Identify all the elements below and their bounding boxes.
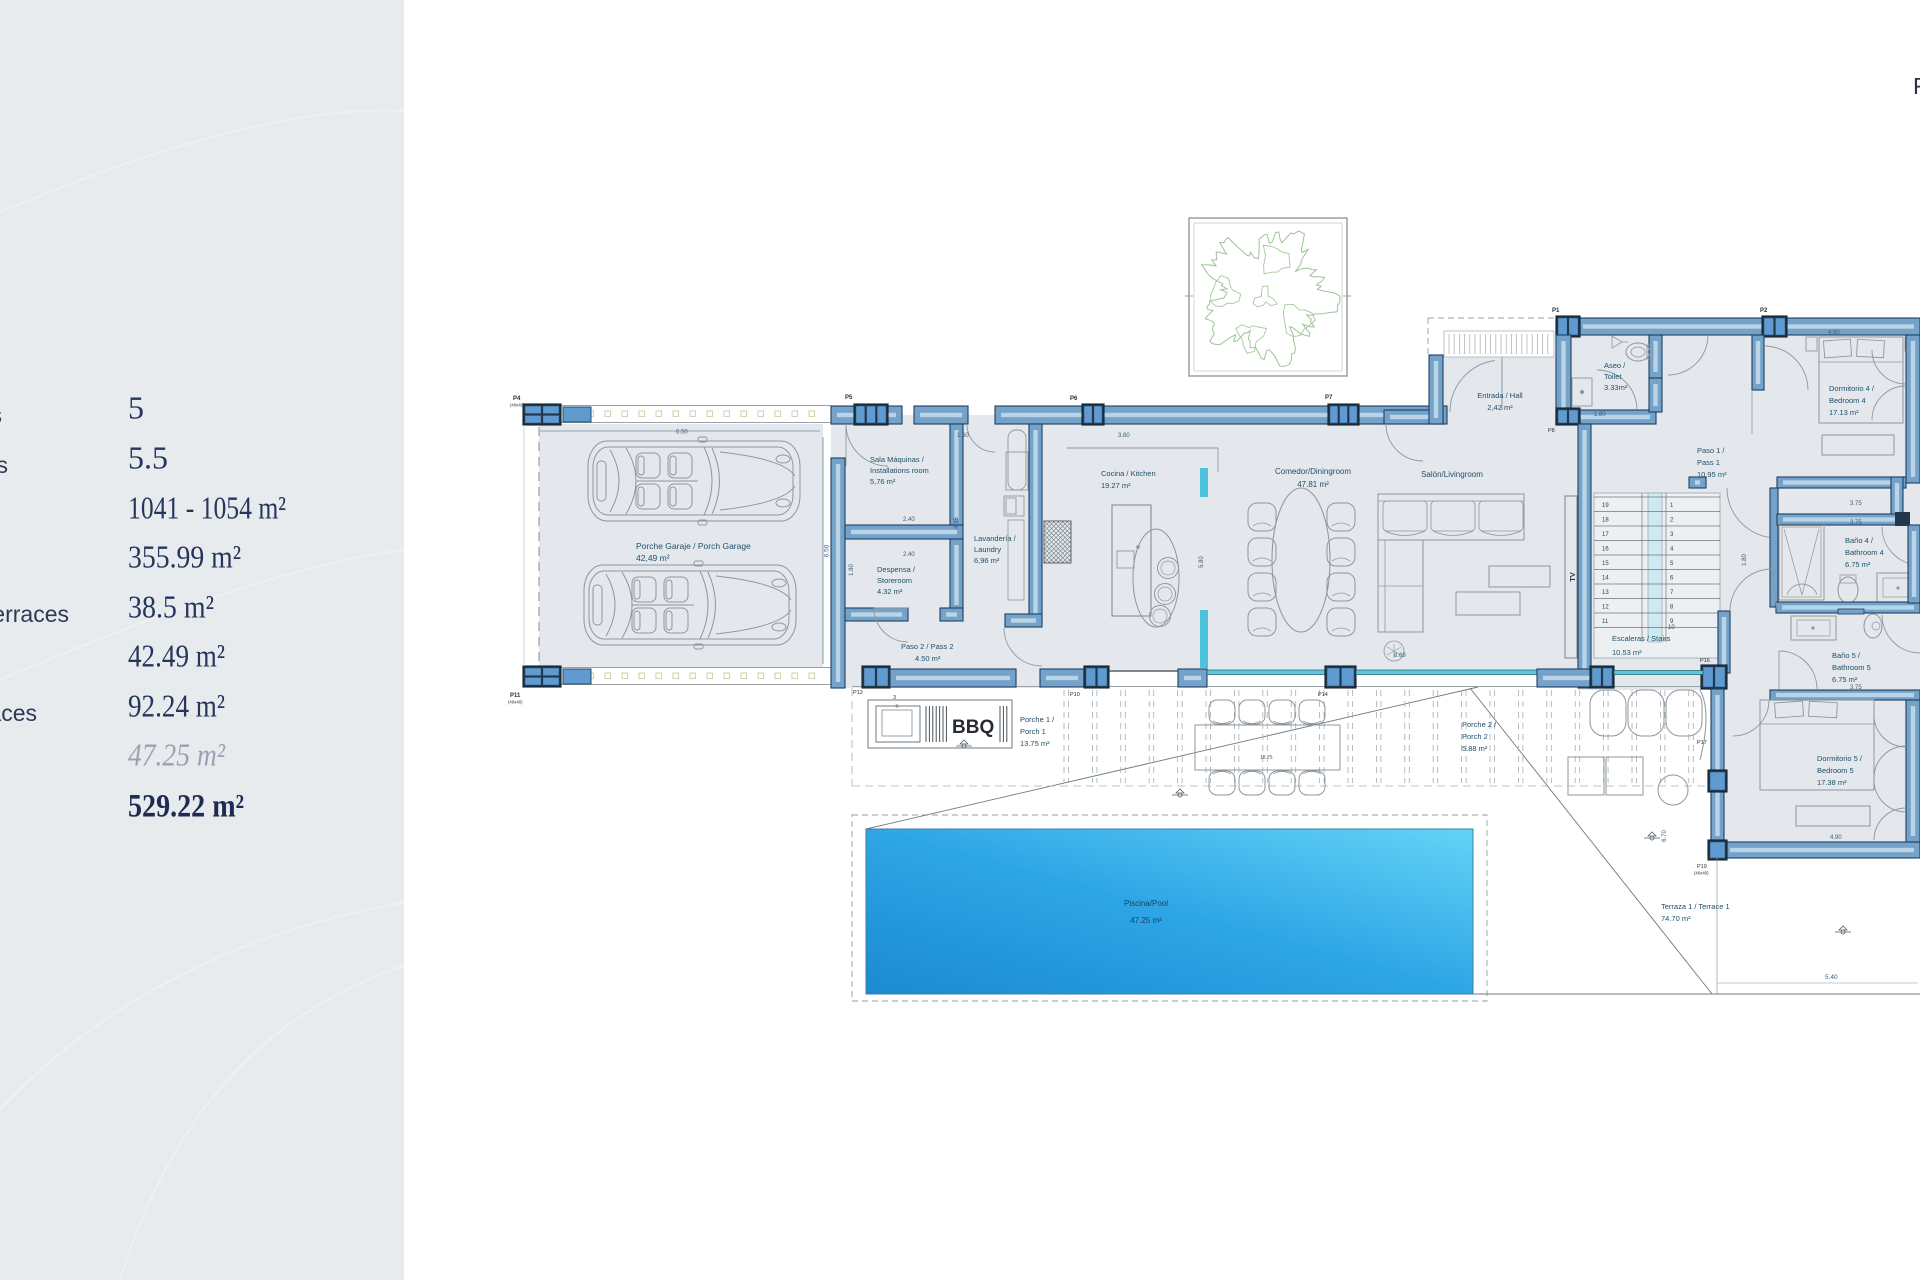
svg-text:(40x40): (40x40) (510, 403, 525, 408)
svg-text:Escaleras / Stairs: Escaleras / Stairs (1612, 634, 1671, 643)
svg-text:P8: P8 (1548, 428, 1555, 434)
svg-text:Sala Máquinas /: Sala Máquinas / (870, 455, 925, 464)
svg-text:Porch 1: Porch 1 (1020, 727, 1046, 736)
svg-text:BBQ: BBQ (952, 717, 994, 738)
svg-text:13.75 m²: 13.75 m² (1020, 739, 1050, 748)
svg-text:8.69: 8.69 (1394, 653, 1406, 659)
svg-text:3.75: 3.75 (1850, 501, 1862, 507)
svg-text:74.70 m²: 74.70 m² (1661, 914, 1691, 923)
svg-text:P4: P4 (513, 396, 521, 402)
svg-text:Paso 2 / Pass 2: Paso 2 / Pass 2 (901, 642, 954, 651)
svg-text:P6: P6 (1070, 396, 1078, 402)
svg-text:Laundry: Laundry (974, 545, 1001, 554)
svg-text:16: 16 (1602, 547, 1609, 553)
svg-text:10.95 m²: 10.95 m² (1697, 470, 1727, 479)
svg-text:18.75: 18.75 (1260, 755, 1273, 761)
svg-text:47.25 m²: 47.25 m² (128, 737, 226, 773)
svg-text:P12: P12 (853, 690, 863, 696)
svg-text:Porche 2 /: Porche 2 / (1462, 720, 1497, 729)
svg-text:1.80: 1.80 (1594, 412, 1606, 418)
svg-text:P16: P16 (1700, 658, 1710, 664)
svg-text:4.35: 4.35 (954, 517, 960, 529)
svg-text:P7: P7 (1325, 395, 1333, 401)
svg-text:4.90: 4.90 (1828, 330, 1840, 336)
svg-text:5.5: 5.5 (128, 440, 168, 476)
svg-text:5.88 m²: 5.88 m² (1462, 744, 1488, 753)
svg-text:4.90: 4.90 (1830, 835, 1842, 841)
svg-text:(40x40): (40x40) (1694, 871, 1709, 876)
svg-text:Covered terraces: Covered terraces (0, 700, 37, 726)
svg-text:3.80: 3.80 (1118, 433, 1130, 439)
svg-text:Porch 2: Porch 2 (1462, 732, 1488, 741)
svg-text:Baño 5 /: Baño 5 / (1832, 651, 1861, 660)
svg-text:(40x40): (40x40) (508, 700, 523, 705)
svg-text:17: 17 (1602, 532, 1609, 538)
svg-text:P10: P10 (1070, 692, 1080, 698)
svg-text:Baño 4 /: Baño 4 / (1845, 536, 1874, 545)
svg-text:Terraza 1 / Terrace 1: Terraza 1 / Terrace 1 (1661, 902, 1730, 911)
svg-text:10.53 m²: 10.53 m² (1612, 648, 1642, 657)
svg-text:355.99 m²: 355.99 m² (128, 539, 241, 575)
svg-text:47.81 m²: 47.81 m² (1297, 480, 1329, 489)
svg-text:Bathroom 4: Bathroom 4 (1845, 548, 1884, 557)
svg-text:15: 15 (1602, 561, 1609, 567)
svg-text:6.75 m²: 6.75 m² (1845, 560, 1871, 569)
svg-text:Paso 1 /: Paso 1 / (1697, 446, 1725, 455)
svg-text:Cocina / Kitchen: Cocina / Kitchen (1101, 469, 1156, 478)
svg-text:11: 11 (1602, 619, 1609, 625)
svg-text:P14: P14 (1318, 692, 1328, 698)
svg-text:Salón/Livingroom: Salón/Livingroom (1421, 470, 1483, 479)
svg-text:Porche 1 /: Porche 1 / (1020, 715, 1055, 724)
svg-text:13: 13 (1602, 590, 1609, 596)
svg-text:P5: P5 (845, 395, 853, 401)
svg-text:Terraces: Terraces (0, 601, 69, 627)
svg-text:Entrada / Hall: Entrada / Hall (1477, 391, 1523, 400)
svg-text:6.50: 6.50 (676, 430, 688, 436)
svg-text:1.80: 1.80 (849, 564, 855, 576)
svg-text:10: 10 (1668, 625, 1675, 631)
svg-text:5,76 m²: 5,76 m² (870, 477, 896, 486)
svg-text:Bedrooms: Bedrooms (0, 402, 2, 428)
svg-text:Aseo /: Aseo / (1604, 361, 1626, 370)
svg-text:Piscina/Pool: Piscina/Pool (1124, 899, 1168, 908)
svg-text:Despensa /: Despensa / (877, 565, 916, 574)
svg-text:2.40: 2.40 (903, 517, 915, 523)
svg-text:14: 14 (1602, 576, 1609, 582)
svg-text:1.80: 1.80 (1742, 554, 1748, 566)
svg-text:Bedroom 5: Bedroom 5 (1817, 766, 1854, 775)
svg-text:P11: P11 (510, 693, 521, 699)
svg-text:Lavandería /: Lavandería / (974, 534, 1017, 543)
svg-text:17.38 m²: 17.38 m² (1817, 778, 1847, 787)
svg-text:4.32 m²: 4.32 m² (877, 587, 903, 596)
svg-text:5.40: 5.40 (1825, 974, 1838, 981)
svg-text:Installations room: Installations room (870, 466, 929, 475)
svg-text:6.70: 6.70 (1662, 830, 1668, 842)
svg-text:5.80: 5.80 (1199, 556, 1205, 568)
svg-text:3: 3 (893, 695, 896, 701)
svg-text:4.50 m²: 4.50 m² (915, 654, 941, 663)
svg-text:1.60: 1.60 (957, 433, 969, 439)
svg-text:Bathroom 5: Bathroom 5 (1832, 663, 1871, 672)
svg-text:18: 18 (1602, 518, 1609, 524)
svg-text:19.27 m²: 19.27 m² (1101, 481, 1131, 490)
svg-text:2,42 m²: 2,42 m² (1487, 403, 1513, 412)
svg-text:5: 5 (128, 390, 144, 426)
svg-text:42,49 m²: 42,49 m² (636, 553, 670, 563)
svg-text:Comedor/Diningroom: Comedor/Diningroom (1275, 467, 1351, 476)
svg-text:P17: P17 (1697, 740, 1707, 746)
svg-text:3.75: 3.75 (1850, 520, 1862, 526)
svg-text:92.24 m²: 92.24 m² (128, 688, 225, 724)
svg-text:6,96 m²: 6,96 m² (974, 556, 1000, 565)
svg-text:1041 - 1054 m²: 1041 - 1054 m² (128, 490, 286, 526)
svg-text:Porche Garaje / Porch Garage: Porche Garaje / Porch Garage (636, 541, 751, 551)
svg-text:42.49 m²: 42.49 m² (128, 638, 225, 674)
svg-text:P19: P19 (1697, 864, 1707, 870)
svg-text:6.50: 6.50 (824, 544, 831, 557)
svg-text:529.22 m²: 529.22 m² (128, 789, 244, 825)
svg-text:Fl: Fl (1913, 73, 1920, 99)
svg-text:TV: TV (1568, 572, 1577, 582)
svg-text:2.40: 2.40 (903, 552, 915, 558)
svg-text:19: 19 (1602, 503, 1609, 509)
svg-text:P1: P1 (1552, 308, 1560, 314)
svg-text:Dormitorio 4 /: Dormitorio 4 / (1829, 384, 1875, 393)
svg-text:3.33m²: 3.33m² (1604, 383, 1628, 392)
svg-text:12: 12 (1602, 605, 1609, 611)
svg-text:Storeroom: Storeroom (877, 576, 912, 585)
svg-text:Bathrooms: Bathrooms (0, 452, 8, 478)
svg-text:47.25 m²: 47.25 m² (1130, 916, 1162, 925)
svg-text:Toilet: Toilet (1604, 372, 1622, 381)
svg-text:Dormitorio 5 /: Dormitorio 5 / (1817, 754, 1863, 763)
svg-text:38.5 m²: 38.5 m² (128, 589, 214, 625)
svg-text:P2: P2 (1760, 308, 1768, 314)
svg-text:17.13 m²: 17.13 m² (1829, 408, 1859, 417)
svg-text:6.75 m²: 6.75 m² (1832, 675, 1858, 684)
svg-text:Bedroom 4: Bedroom 4 (1829, 396, 1866, 405)
svg-text:Pass 1: Pass 1 (1697, 458, 1720, 467)
